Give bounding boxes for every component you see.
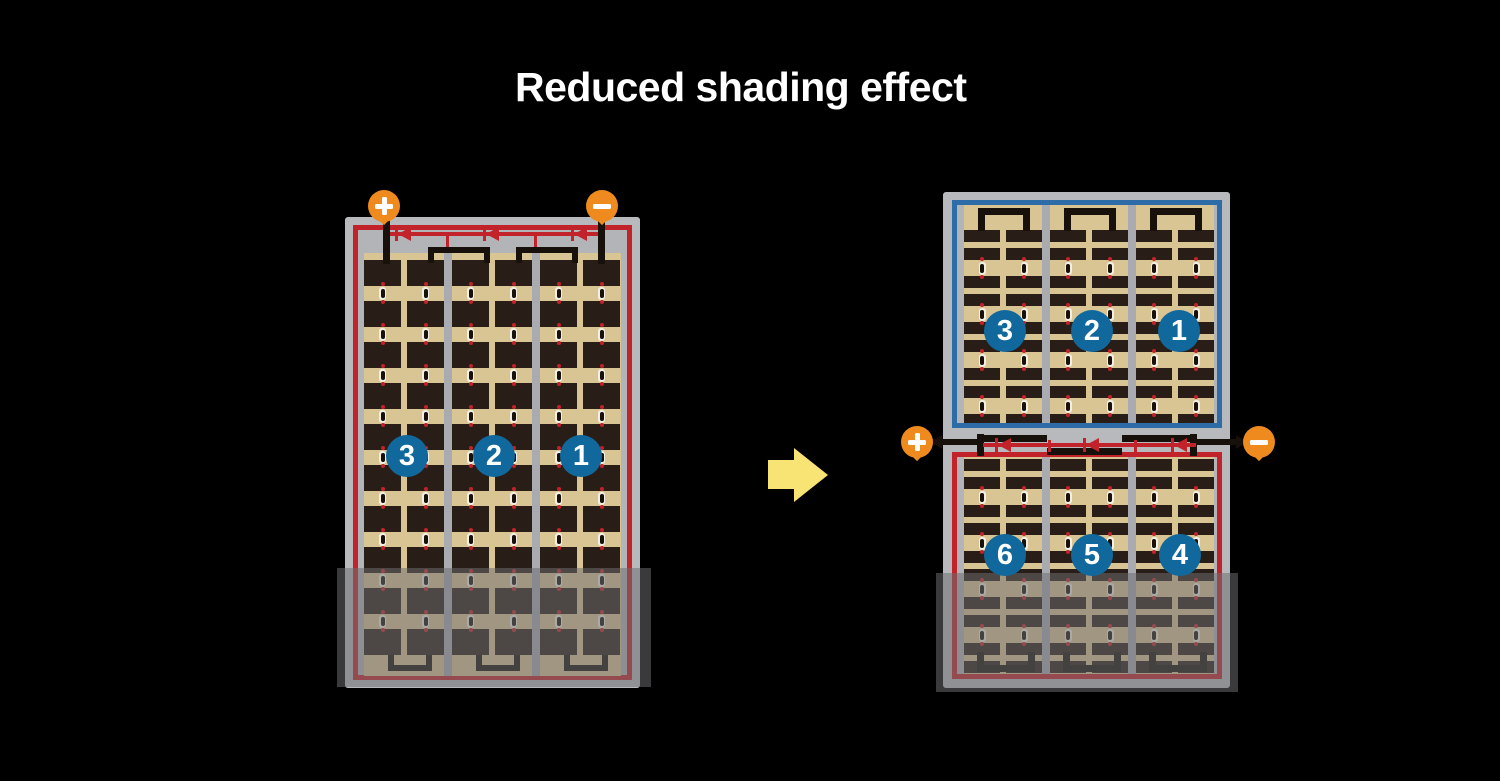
- string-bridge-wire: [516, 247, 578, 263]
- string-badge: 1: [1158, 310, 1200, 352]
- interconnect-joint: [510, 533, 517, 546]
- string-bridge-wire: [1150, 208, 1202, 231]
- half-cell-bar: [1092, 230, 1128, 242]
- interconnect-joint: [1107, 354, 1114, 367]
- half-cell-bar: [1006, 276, 1042, 288]
- interconnect-joint: [1107, 491, 1114, 504]
- plus-terminal-right: +: [901, 426, 933, 458]
- interconnect-joint: [1065, 262, 1072, 275]
- string-badge: 1: [560, 435, 602, 477]
- half-cell-bar: [1136, 505, 1172, 517]
- interconnect-joint: [510, 410, 517, 423]
- half-cell-bar: [964, 414, 1000, 423]
- interconnect-joint: [422, 410, 429, 423]
- interconnect-joint: [1065, 400, 1072, 413]
- interconnect-joint: [979, 491, 986, 504]
- half-cell-bar: [1050, 505, 1086, 517]
- interconnect-joint: [1193, 491, 1200, 504]
- interconnect-joint: [1065, 491, 1072, 504]
- interconnect-joint: [1021, 354, 1028, 367]
- interconnect-joint: [422, 287, 429, 300]
- half-cell-bar: [964, 276, 1000, 288]
- interconnect-joint: [598, 533, 605, 546]
- string-number: 3: [399, 440, 415, 473]
- interconnect-joint: [467, 533, 474, 546]
- interconnect-joint: [467, 410, 474, 423]
- plus-terminal-left: +: [368, 190, 400, 222]
- half-cell-bar: [1136, 230, 1172, 242]
- interconnect-joint: [1151, 491, 1158, 504]
- string-bridge-wire: [1064, 208, 1116, 231]
- interconnect-joint: [379, 369, 386, 382]
- interconnect-joint: [422, 328, 429, 341]
- half-cell-bar: [1092, 505, 1128, 517]
- transform-arrow-head: [794, 448, 828, 502]
- string-bridge-wire: [428, 247, 490, 263]
- interconnect-joint: [1151, 308, 1158, 321]
- interconnect-joint: [1151, 400, 1158, 413]
- interconnect-joint: [555, 328, 562, 341]
- terminal-tail: [1252, 447, 1266, 461]
- interconnect-joint: [1151, 537, 1158, 550]
- column-divider: [1042, 205, 1050, 423]
- interconnect-joint: [467, 287, 474, 300]
- interconnect-joint: [1021, 400, 1028, 413]
- half-cell-bar: [1092, 414, 1128, 423]
- string-badge: 4: [1159, 534, 1201, 576]
- diode-tap-line: [534, 234, 537, 247]
- interconnect-joint: [510, 328, 517, 341]
- interconnect-joint: [1065, 308, 1072, 321]
- shading-overlay-right: [936, 573, 1238, 692]
- interconnect-joint: [1193, 400, 1200, 413]
- half-cell-bar: [1092, 459, 1128, 471]
- diode-tap-line: [1048, 440, 1051, 452]
- diode-tap-line: [446, 234, 449, 247]
- half-cell-bar: [964, 230, 1000, 242]
- interconnect-joint: [379, 287, 386, 300]
- terminal-label: +: [901, 426, 902, 427]
- interconnect-joint: [1193, 262, 1200, 275]
- interconnect-joint: [1021, 491, 1028, 504]
- string-number: 4: [1172, 539, 1188, 572]
- half-cell-bar: [1006, 368, 1042, 380]
- minus-icon: [593, 204, 611, 209]
- string-number: 1: [573, 440, 589, 473]
- half-cell-bar: [1050, 414, 1086, 423]
- half-cell-bar: [1178, 459, 1214, 471]
- junction-busbar: [980, 435, 1047, 442]
- half-cell-bar: [1178, 505, 1214, 517]
- half-cell-bar: [1136, 368, 1172, 380]
- interconnect-joint: [979, 262, 986, 275]
- interconnect-joint: [510, 287, 517, 300]
- string-badge: 3: [386, 435, 428, 477]
- interconnect-joint: [979, 400, 986, 413]
- plus-icon: [382, 197, 387, 215]
- interconnect-joint: [598, 287, 605, 300]
- minus-icon: [1250, 440, 1268, 445]
- string-badge: 2: [1071, 310, 1113, 352]
- half-cell-bar: [1178, 230, 1214, 242]
- interconnect-joint: [510, 369, 517, 382]
- bypass-diode-icon: [1083, 438, 1100, 452]
- half-cell-bar: [1092, 276, 1128, 288]
- string-badge: 3: [984, 310, 1026, 352]
- minus-terminal-left: −: [586, 190, 618, 222]
- interconnect-joint: [1151, 354, 1158, 367]
- column-divider: [1128, 205, 1136, 423]
- terminal-label: −: [586, 190, 587, 191]
- string-number: 6: [997, 539, 1013, 572]
- interconnect-joint: [422, 533, 429, 546]
- interconnect-joint: [379, 451, 386, 464]
- diode-tap-line: [1134, 440, 1137, 452]
- transform-arrow: [768, 460, 795, 489]
- half-cell-bar: [1050, 276, 1086, 288]
- interconnect-joint: [979, 308, 986, 321]
- string-number: 2: [486, 440, 502, 473]
- interconnect-joint: [555, 533, 562, 546]
- string-badge: 2: [473, 435, 515, 477]
- half-cell-bar: [1136, 276, 1172, 288]
- interconnect-joint: [467, 328, 474, 341]
- half-cell-bar: [1178, 276, 1214, 288]
- interconnect-joint: [379, 410, 386, 423]
- interconnect-joint: [1065, 354, 1072, 367]
- string-number: 1: [1171, 315, 1187, 348]
- string-bridge-wire: [978, 208, 1030, 231]
- minus-terminal-right: −: [1243, 426, 1275, 458]
- half-cell-bar: [1136, 414, 1172, 423]
- interconnect-joint: [510, 492, 517, 505]
- string-badge: 5: [1071, 534, 1113, 576]
- interconnect-joint: [1151, 262, 1158, 275]
- half-cell-bar: [1006, 459, 1042, 471]
- interconnect-joint: [598, 410, 605, 423]
- diagram-stage: Reduced shading effect: [0, 0, 1500, 781]
- bypass-diode-icon: [995, 438, 1012, 452]
- half-cell-bar: [1178, 368, 1214, 380]
- interconnect-joint: [555, 287, 562, 300]
- half-cell-bar: [1050, 368, 1086, 380]
- string-badge: 6: [984, 534, 1026, 576]
- half-cell-bar: [1006, 230, 1042, 242]
- shading-overlay-left: [337, 568, 651, 687]
- plus-icon: [915, 433, 920, 451]
- half-cell-bar: [964, 459, 1000, 471]
- interconnect-joint: [467, 492, 474, 505]
- interconnect-joint: [379, 492, 386, 505]
- bypass-diode-icon: [395, 227, 412, 241]
- bypass-diode-icon: [483, 227, 500, 241]
- half-cell-bar: [1050, 459, 1086, 471]
- terminal-label: −: [1243, 426, 1244, 427]
- bypass-diode-icon: [571, 227, 588, 241]
- interconnect-joint: [598, 369, 605, 382]
- half-cell-bar: [1006, 414, 1042, 423]
- interconnect-joint: [467, 369, 474, 382]
- half-cell-bar: [964, 505, 1000, 517]
- page-title: Reduced shading effect: [515, 64, 966, 111]
- half-cell-bar: [1050, 230, 1086, 242]
- interconnect-joint: [555, 410, 562, 423]
- interconnect-joint: [422, 369, 429, 382]
- bypass-diode-icon: [1171, 438, 1188, 452]
- half-cell-bar: [1136, 459, 1172, 471]
- interconnect-joint: [979, 354, 986, 367]
- interconnect-joint: [379, 328, 386, 341]
- interconnect-joint: [422, 492, 429, 505]
- string-number: 5: [1084, 539, 1100, 572]
- interconnect-joint: [1107, 262, 1114, 275]
- string-number: 3: [997, 315, 1013, 348]
- interconnect-joint: [1107, 400, 1114, 413]
- half-cell-bar: [964, 368, 1000, 380]
- terminal-label: +: [368, 190, 369, 191]
- interconnect-joint: [598, 328, 605, 341]
- string-number: 2: [1084, 315, 1100, 348]
- interconnect-joint: [1021, 262, 1028, 275]
- interconnect-joint: [379, 533, 386, 546]
- interconnect-joint: [555, 492, 562, 505]
- interconnect-joint: [555, 369, 562, 382]
- interconnect-joint: [598, 492, 605, 505]
- half-cell-bar: [1006, 505, 1042, 517]
- half-cell-bar: [1092, 368, 1128, 380]
- interconnect-joint: [1193, 354, 1200, 367]
- interconnect-joint: [1065, 537, 1072, 550]
- half-cell-bar: [1178, 414, 1214, 423]
